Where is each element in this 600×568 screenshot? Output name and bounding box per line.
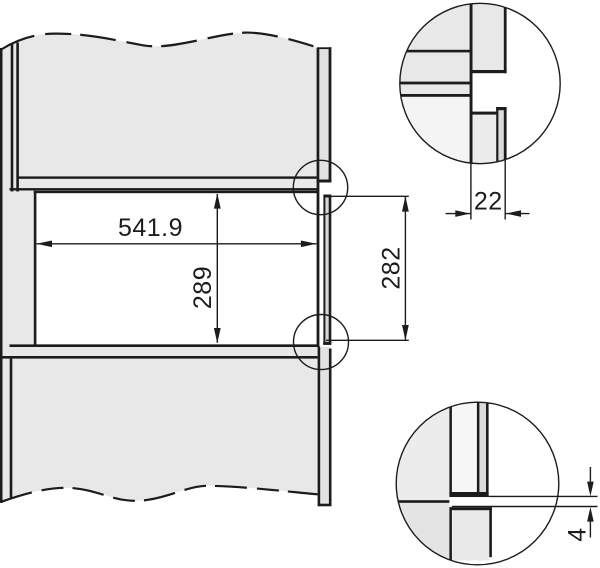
installation-diagram: 541.9 289 282 bbox=[0, 0, 600, 568]
front-frame-height-dimension: 282 bbox=[326, 196, 409, 340]
bottom-shelf-line bbox=[3, 356, 318, 359]
arrow-left-icon bbox=[506, 210, 521, 217]
arrow-up-icon bbox=[402, 196, 409, 211]
cabinet-section bbox=[0, 33, 349, 507]
front-frame-height-label: 282 bbox=[378, 246, 406, 289]
lower-left-panel-line bbox=[10, 359, 13, 498]
upper-left-panel-line-1 bbox=[11, 44, 14, 192]
top-panel-line-a bbox=[18, 176, 318, 178]
bottom-gap-label: 4 bbox=[564, 527, 592, 541]
bottom-side-panel bbox=[318, 347, 332, 507]
niche-left-edge bbox=[34, 191, 37, 347]
top-panel-line-b bbox=[10, 188, 318, 190]
arrow-right-icon bbox=[455, 210, 470, 217]
installation-diagram-page: 541.9 289 282 bbox=[0, 0, 600, 568]
arrow-down-icon bbox=[402, 325, 409, 340]
niche-width-label: 541.9 bbox=[118, 214, 183, 242]
top-detail-callout: 22 bbox=[395, 0, 560, 220]
left-outer-edge bbox=[0, 48, 3, 503]
side-panel-thickness-dimension: 22 bbox=[446, 160, 530, 220]
niche-right-edge bbox=[317, 48, 320, 347]
arrow-down-icon bbox=[587, 482, 594, 497]
upper-left-panel-line-2 bbox=[16, 43, 19, 192]
appliance-front-frame bbox=[323, 195, 331, 345]
side-panel-thickness-label: 22 bbox=[474, 188, 503, 216]
bottom-detail-callout: 4 bbox=[396, 400, 598, 566]
niche-bottom-edge bbox=[10, 344, 318, 347]
niche-top-edge bbox=[34, 191, 318, 193]
arrow-up-icon bbox=[587, 507, 594, 522]
niche-inner-height-label: 289 bbox=[189, 266, 217, 309]
